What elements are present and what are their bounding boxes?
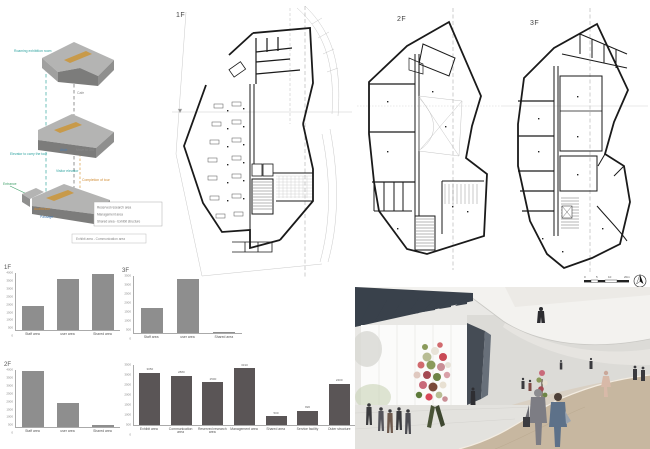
chart-title-3f: 3F <box>122 268 242 274</box>
plot-area <box>15 273 120 331</box>
axon-svg: Roaming exhibition room Cafe Elevator to… <box>2 2 170 260</box>
label-completion: Completion of tour <box>82 178 111 182</box>
scale-10: 10 <box>608 275 612 279</box>
label-auditorium: Auditorium <box>34 207 50 211</box>
chart-title-2f: 2F <box>4 362 120 368</box>
plot-area <box>15 370 120 428</box>
glowing-wall <box>355 325 467 411</box>
bar-user-area <box>177 279 199 333</box>
category-row: Staff areauser areaShared area <box>133 336 242 340</box>
y-tick-label: 3000 <box>6 384 13 387</box>
label-visitor-elevator: Visitor elevator <box>56 169 79 173</box>
y-tick-label: 1500 <box>124 403 131 406</box>
floor-plan-3f: 3F <box>502 6 648 278</box>
y-axis: 05001000150020002500300035004000 <box>4 273 15 336</box>
scale-20: 20m <box>624 275 630 279</box>
label-roaming: Roaming exhibition room <box>14 49 52 53</box>
y-tick-label: 500 <box>8 327 13 330</box>
y-axis: 05001000150020002500300035004000 <box>4 370 15 433</box>
y-tick-label: 4000 <box>6 272 13 275</box>
legend-line-3: Shared area - Exhibit structure <box>97 220 140 224</box>
plan-1f-label: 1F <box>176 12 185 19</box>
bar-outer-structure: 2400 <box>329 384 350 425</box>
category-label: user area <box>169 336 205 340</box>
y-tick-label: 3000 <box>124 374 131 377</box>
chart-floor-3f: 3F 0500100015002000250030003500 Staff ar… <box>122 268 242 339</box>
bar-value-label: 2880 <box>171 371 192 374</box>
category-label: Exhibit area <box>133 428 165 435</box>
y-axis: 0500100015002000250030003500 <box>122 276 133 339</box>
scalebar-labels: 0 5 10 20m <box>584 275 630 279</box>
axon-diagram: Roaming exhibition room Cafe Elevator to… <box>2 2 170 260</box>
y-tick-label: 500 <box>8 424 13 427</box>
category-label: Shared area <box>206 336 242 340</box>
bar-exhibit-area: 3050 <box>139 373 160 425</box>
category-label: user area <box>50 430 85 434</box>
y-tick-label: 2500 <box>6 392 13 395</box>
legend-line-1: Reserved research area <box>97 206 131 210</box>
columns <box>387 91 468 229</box>
y-tick-label: 0 <box>11 432 13 435</box>
y-tick-label: 2000 <box>6 303 13 306</box>
y-axis: 0500100015002000250030003500 <box>122 365 133 435</box>
floor-plan-2f: 2F <box>357 6 502 274</box>
floor-plan-1f: 1F <box>172 4 355 282</box>
chart-floor-2f: 2F 05001000150020002500300035004000 Staf… <box>4 362 120 433</box>
label-entrance: Entrance <box>3 182 17 186</box>
category-label: Shared area <box>85 430 120 434</box>
category-row: Staff areauser areaShared area <box>15 430 120 434</box>
interior-rendering <box>355 287 650 449</box>
section-marker-icon <box>178 109 182 113</box>
bar-communication-area: 2880 <box>171 376 192 425</box>
category-row: Staff areauser areaShared area <box>15 333 120 337</box>
category-label: Reserved research area <box>196 428 228 435</box>
category-label: Shared area <box>85 333 120 337</box>
y-tick-label: 3500 <box>6 279 13 282</box>
y-tick-label: 0 <box>129 433 131 436</box>
plan-2f-svg <box>357 6 502 274</box>
axon-floor3-slab <box>42 42 114 86</box>
grid-room <box>276 176 312 198</box>
scalebar-icon <box>584 280 629 282</box>
bar-user-area <box>57 403 79 427</box>
y-tick-label: 3000 <box>6 287 13 290</box>
parking-stalls <box>208 102 244 218</box>
y-tick-label: 1500 <box>6 311 13 314</box>
y-tick-label: 1500 <box>6 408 13 411</box>
render-svg <box>355 287 650 449</box>
label-passage: Passage <box>40 215 53 219</box>
label-move-3rd: Move to 3rd <box>76 148 94 152</box>
label-elevator-tour: Elevator to carry the tour <box>10 152 48 156</box>
bar-shared-area: 500 <box>266 416 287 425</box>
bar-service-facility: 820 <box>297 411 318 425</box>
escalator-hatch <box>445 184 477 204</box>
category-row: Exhibit areaCommunication areaReserved r… <box>133 428 355 435</box>
scale-5: 5 <box>596 275 598 279</box>
category-label: Service facility <box>292 428 324 435</box>
category-label: Staff area <box>15 333 50 337</box>
legend-line-2: Management area <box>97 213 123 217</box>
section-line <box>172 109 352 113</box>
y-tick-label: 500 <box>126 423 131 426</box>
columns <box>538 96 603 252</box>
bar-value-label: 3310 <box>234 364 255 367</box>
bar-reserved-research-area: 2500 <box>202 382 223 425</box>
plan-3f-walls <box>518 24 630 268</box>
y-tick-label: 1000 <box>6 319 13 322</box>
category-label: Staff area <box>15 430 50 434</box>
y-tick-label: 3000 <box>124 284 131 287</box>
plan-3f-svg <box>502 6 648 278</box>
y-tick-label: 1000 <box>6 416 13 419</box>
y-tick-label: 3500 <box>124 275 131 278</box>
y-tick-label: 2500 <box>124 384 131 387</box>
label-cafe: Cafe <box>77 91 84 95</box>
plot-area <box>133 276 242 334</box>
y-tick-label: 0 <box>129 338 131 341</box>
y-tick-label: 2000 <box>6 400 13 403</box>
stair-hatch <box>416 219 434 246</box>
bar-staff-area <box>22 306 44 330</box>
plan-1f-svg <box>172 4 355 282</box>
chart-program-totals: 0500100015002000250030003500 30502880250… <box>122 365 355 435</box>
y-tick-label: 0 <box>11 335 13 338</box>
bar-shared-area <box>92 274 114 330</box>
atrium-void <box>419 96 462 156</box>
presentation-board: Roaming exhibition room Cafe Elevator to… <box>0 0 650 449</box>
bar-staff-area <box>141 308 163 333</box>
bar-staff-area <box>22 371 44 427</box>
y-tick-label: 2500 <box>124 293 131 296</box>
y-tick-label: 3500 <box>6 376 13 379</box>
plan-2f-label: 2F <box>397 16 406 23</box>
y-tick-label: 3500 <box>124 364 131 367</box>
category-label: Management area <box>228 428 260 435</box>
axon-legend: Reserved research area Management area S… <box>94 202 162 226</box>
y-tick-label: 2000 <box>124 302 131 305</box>
caption-text: Exhibit area - Communication area <box>76 237 125 241</box>
y-tick-label: 4000 <box>6 369 13 372</box>
bar-value-label: 2400 <box>329 379 350 382</box>
y-tick-label: 1500 <box>124 311 131 314</box>
category-label: Staff area <box>133 336 169 340</box>
bar-value-label: 820 <box>297 406 318 409</box>
stair-hatch <box>561 198 579 228</box>
plan-3f-label: 3F <box>530 20 539 27</box>
bar-shared-area <box>213 332 235 333</box>
category-label: Outer structure <box>323 428 355 435</box>
scale-0: 0 <box>584 275 586 279</box>
plot-area: 30502880250033105008202400 <box>133 365 355 426</box>
y-tick-label: 1000 <box>124 413 131 416</box>
bar-user-area <box>57 279 79 330</box>
bar-value-label: 2500 <box>202 378 223 381</box>
chart-floor-1f: 1F 05001000150020002500300035004000 Staf… <box>4 265 120 336</box>
site-context <box>176 6 339 276</box>
wedge-pillar <box>467 323 491 405</box>
y-tick-label: 500 <box>126 329 131 332</box>
category-label: user area <box>50 333 85 337</box>
y-tick-label: 2000 <box>124 394 131 397</box>
bar-management-area: 3310 <box>234 368 255 425</box>
bar-value-label: 3050 <box>139 368 160 371</box>
label-aisle: Aisle <box>60 148 67 152</box>
y-tick-label: 1000 <box>124 320 131 323</box>
plan-1f-walls <box>184 28 313 252</box>
bar-value-label: 500 <box>266 412 287 415</box>
bar-shared-area <box>92 425 114 427</box>
category-label: Shared area <box>260 428 292 435</box>
north-arrow-icon <box>634 275 646 288</box>
stair-hatch <box>253 182 272 209</box>
chart-title-1f: 1F <box>4 265 120 271</box>
axon-caption: Exhibit area - Communication area <box>72 234 146 243</box>
y-tick-label: 2500 <box>6 295 13 298</box>
category-label: Communication area <box>165 428 197 435</box>
